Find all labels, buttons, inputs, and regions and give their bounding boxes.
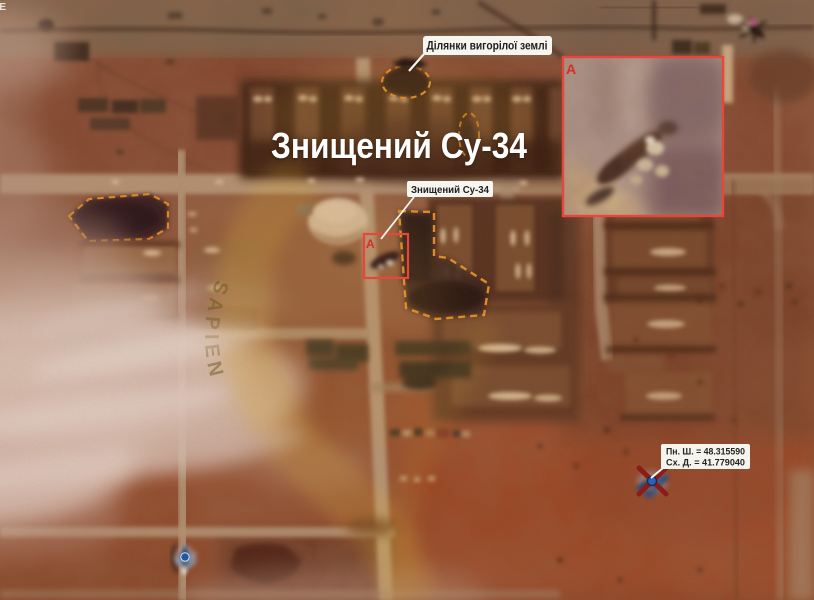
svg-text:Знищений Су-34: Знищений Су-34 [411,184,489,196]
svg-text:Ділянки вигорілої землі: Ділянки вигорілої землі [427,41,548,53]
svg-text:А: А [566,61,576,77]
svg-text:-Е: -Е [0,2,6,13]
svg-text:А: А [366,237,375,251]
svg-text:Сх. Д. = 41.779040: Сх. Д. = 41.779040 [666,458,745,469]
svg-text:Пн. Ш. = 48.315590: Пн. Ш. = 48.315590 [666,447,745,458]
svg-text:Знищений Су-34: Знищений Су-34 [271,125,527,166]
